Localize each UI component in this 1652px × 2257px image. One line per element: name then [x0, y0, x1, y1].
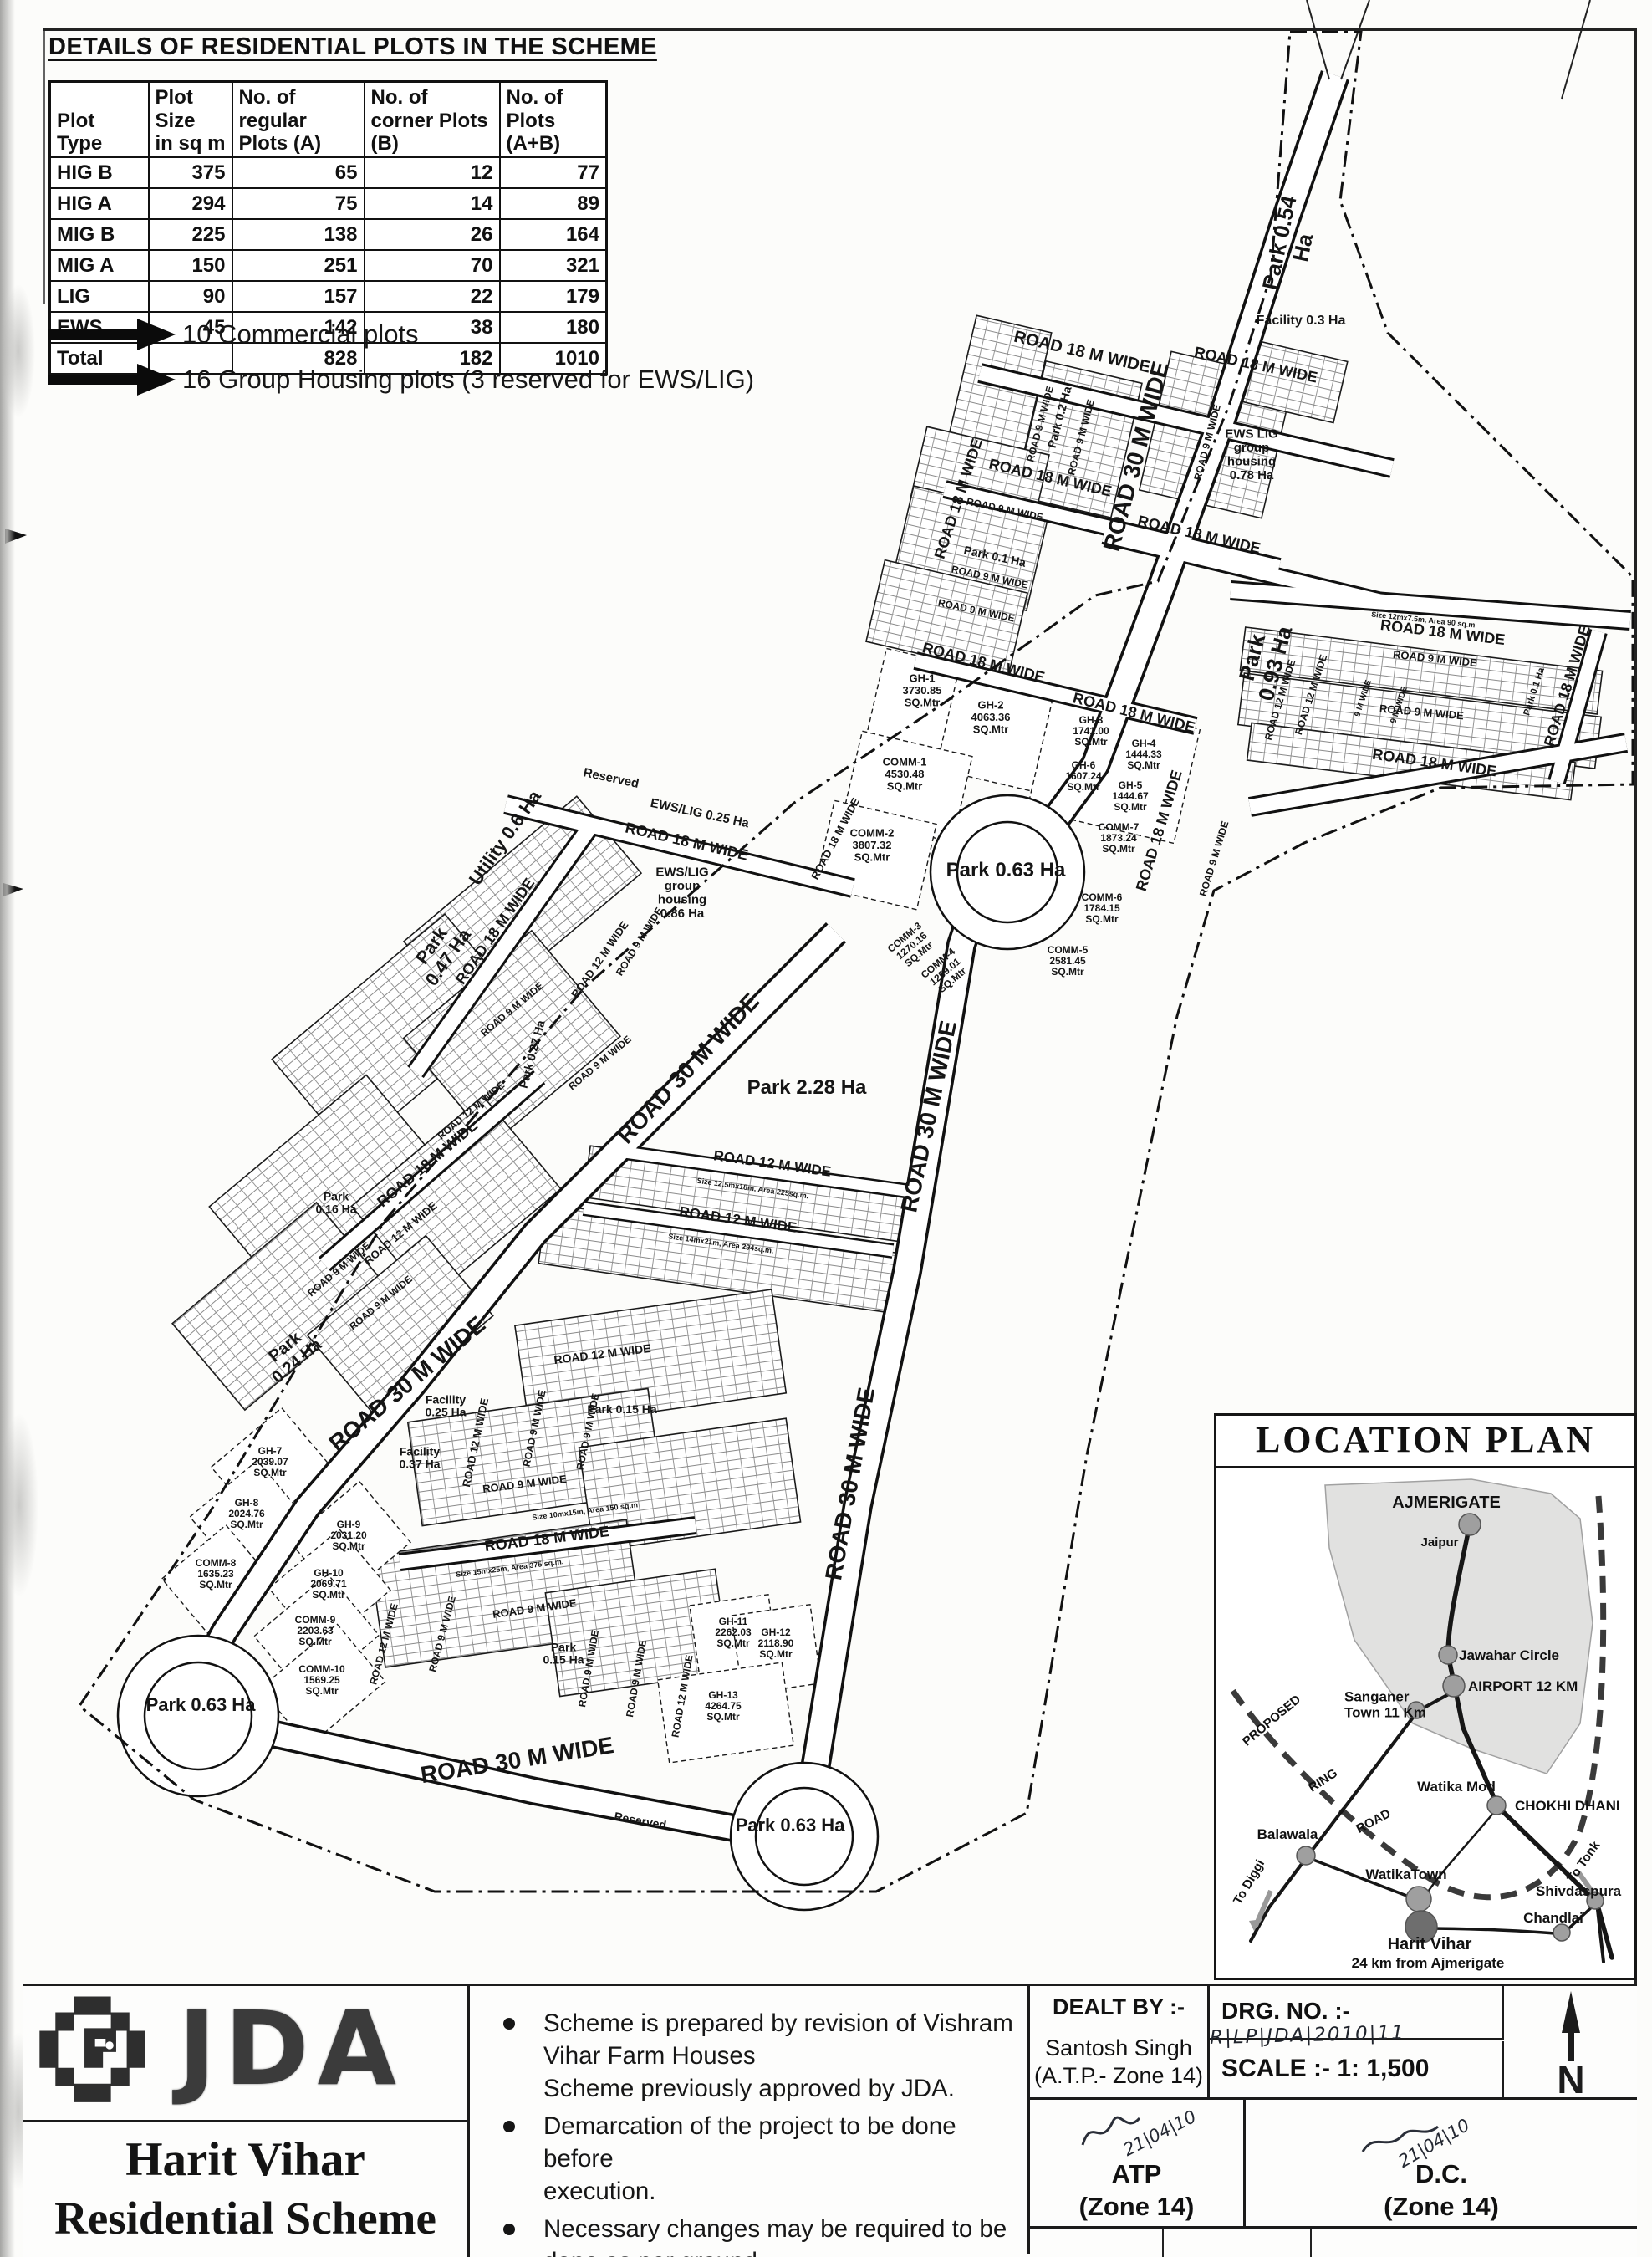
table-cell: 75 — [232, 188, 365, 219]
table-row: LIG9015722179 — [50, 281, 607, 312]
table-cell: 22 — [365, 281, 500, 312]
table-cell: 14 — [365, 188, 500, 219]
table-cell: 157 — [232, 281, 365, 312]
map-label: ROAD 30 M WIDE — [612, 988, 764, 1149]
tick-mark — [1162, 2229, 1164, 2257]
location-label: Shivdaspura — [1536, 1883, 1622, 1899]
table-header-cell: Plot Type — [50, 82, 149, 158]
sheet-border-top — [43, 28, 1637, 31]
agency-name: JDA — [178, 1989, 405, 2108]
dc-label: D.C. (Zone 14) — [1246, 2158, 1637, 2224]
map-label: COMM-92203.63SQ.Mtr — [295, 1614, 336, 1647]
note-text: Scheme is prepared by revision of Vishra… — [543, 2008, 1013, 2106]
svg-text:N: N — [1557, 2058, 1584, 2097]
map-label: COMM-81635.23SQ.Mtr — [196, 1557, 237, 1591]
jda-logo-icon — [33, 1989, 167, 2121]
location-plan-map: AJMERIGATEJaipurJawahar CircleAIRPORT 12… — [1221, 1473, 1630, 1974]
scheme-name-line1: Harit Vihar — [23, 2132, 467, 2187]
location-label: AJMERIGATE — [1392, 1494, 1501, 1512]
atp-sign-cell: 21|04|10 ATP (Zone 14) — [1030, 2097, 1246, 2229]
bullet-icon — [503, 2224, 515, 2235]
map-label: Park 0.63 Ha — [736, 1815, 846, 1836]
north-arrow-cell: N — [1504, 1986, 1637, 2097]
location-label: To Diggi — [1231, 1857, 1267, 1907]
location-node — [1487, 1796, 1506, 1815]
drg-no-cell: DRG. NO. :- R|LP|JDA|2010|11 — [1210, 1986, 1504, 2040]
map-label: COMM-52581.45SQ.Mtr — [1048, 944, 1089, 978]
note-text: Necessary changes may be required to be … — [543, 2214, 1007, 2257]
scheme-name-cell: Harit Vihar Residential Scheme — [23, 2122, 470, 2257]
dealt-by-role: (A.T.P.- Zone 14) — [1030, 2063, 1207, 2089]
table-cell: 65 — [232, 157, 365, 188]
location-plan-inset: LOCATION PLAN — [1214, 1413, 1637, 1980]
atp-label: ATP (Zone 14) — [1030, 2158, 1243, 2224]
map-label: Facility0.37 Ha — [399, 1444, 440, 1470]
location-node — [1297, 1846, 1315, 1865]
location-label: Watika Mod — [1417, 1779, 1496, 1795]
bullet-icon — [503, 2121, 515, 2132]
table-cell: 12 — [365, 157, 500, 188]
table-cell: HIG A — [50, 188, 149, 219]
table-cell: 225 — [149, 219, 232, 250]
table-header-cell: No. of corner Plots (B) — [365, 82, 500, 158]
table-cell: 77 — [500, 157, 607, 188]
legend-group-housing-label: 16 Group Housing plots (3 reserved for E… — [182, 365, 754, 395]
legend-group-housing: 16 Group Housing plots (3 reserved for E… — [48, 365, 754, 395]
table-cell: 179 — [500, 281, 607, 312]
note-item: Scheme is prepared by revision of Vishra… — [503, 2008, 1019, 2106]
table-cell: MIG B — [50, 219, 149, 250]
location-label: CHOKHI DHANI — [1515, 1798, 1620, 1814]
map-label: EWS/LIG 0.25 Ha — [649, 796, 751, 831]
table-cell: 70 — [365, 250, 500, 281]
table-row: MIG B22513826164 — [50, 219, 607, 250]
table-header-cell: Plot Size in sq m — [149, 82, 232, 158]
note-item: Necessary changes may be required to be … — [503, 2214, 1019, 2257]
location-label: Jawahar Circle — [1459, 1647, 1559, 1663]
notes-cell: Scheme is prepared by revision of Vishra… — [470, 1986, 1030, 2254]
map-label: Reserved — [582, 765, 640, 791]
map-label: COMM-101569.25SQ.Mtr — [298, 1663, 345, 1697]
map-label: Facility 0.3 Ha — [1257, 314, 1346, 328]
dc-sign-cell: 21|04|10 D.C. (Zone 14) — [1246, 2097, 1637, 2229]
agency-cell: JDA — [23, 1986, 470, 2122]
scanned-scheme-drawing: Park 0.54HaFacility 0.3 HaROAD 18 M WIDE… — [0, 0, 1652, 2257]
arrow-icon — [48, 329, 139, 340]
table-cell: 89 — [500, 188, 607, 219]
dealt-by-cell: DEALT BY :- Santosh Singh (A.T.P.- Zone … — [1030, 1986, 1210, 2097]
map-label: GH-122118.90SQ.Mtr — [758, 1626, 794, 1660]
table-header-cell: No. of regular Plots (A) — [232, 82, 365, 158]
map-label: COMM-23807.32SQ.Mtr — [850, 827, 895, 864]
location-node — [1439, 1646, 1457, 1664]
table-cell: 375 — [149, 157, 232, 188]
location-label: Harit Vihar — [1388, 1935, 1472, 1953]
north-arrow-icon: N — [1504, 1986, 1637, 2097]
map-label: Park 2.28 Ha — [747, 1076, 867, 1099]
location-label: Chandlai — [1523, 1910, 1583, 1926]
scan-smudge — [2, 284, 35, 418]
location-node — [1553, 1924, 1570, 1941]
map-label: Park 0.15 Ha — [587, 1402, 656, 1416]
legend-commercial-label: 10 Commercial plots — [182, 319, 419, 350]
page-title: DETAILS OF RESIDENTIAL PLOTS IN THE SCHE… — [48, 33, 657, 61]
map-label: ROAD 9 M WIDE — [1197, 820, 1231, 897]
map-label: Park 0.63 Ha — [146, 1694, 257, 1715]
scale-value: SCALE :- 1: 1,500 — [1221, 2055, 1502, 2083]
location-label: Jaipur — [1420, 1535, 1458, 1550]
drg-no-label: DRG. NO. :- — [1221, 1998, 1350, 2025]
location-label: Balawala — [1257, 1826, 1318, 1842]
table-cell: 180 — [500, 312, 607, 343]
table-cell: 164 — [500, 219, 607, 250]
map-label: GH-102069.71SQ.Mtr — [310, 1567, 347, 1601]
table-cell: 150 — [149, 250, 232, 281]
map-label: Facility0.25 Ha — [425, 1392, 466, 1418]
location-plan-title: LOCATION PLAN — [1216, 1416, 1634, 1468]
table-row: HIG B375651277 — [50, 157, 607, 188]
map-label: Park 0.54Ha — [1257, 193, 1325, 297]
table-cell: HIG B — [50, 157, 149, 188]
legend-commercial: 10 Commercial plots — [48, 319, 419, 350]
location-label: WatikaTown — [1365, 1866, 1446, 1882]
title-block: JDA Harit Vihar Residential Scheme Schem… — [23, 1984, 1637, 2257]
map-label: GH-134264.75SQ.Mtr — [705, 1689, 742, 1723]
dealt-by-label: DEALT BY :- — [1030, 1994, 1207, 2020]
location-label: 24 km from Ajmerigate — [1352, 1955, 1505, 1971]
scheme-name-line2: Residential Scheme — [23, 2192, 467, 2244]
location-node — [1459, 1514, 1481, 1535]
map-label: Park 0.63 Ha — [946, 859, 1066, 881]
dealt-by-name: Santosh Singh — [1030, 2035, 1207, 2061]
arrow-icon — [48, 375, 139, 385]
map-label: EWS LIGgrouphousing0.78 Ha — [1225, 426, 1277, 483]
note-text: Demarcation of the project to be done be… — [543, 2111, 1019, 2208]
table-cell: LIG — [50, 281, 149, 312]
location-node — [1443, 1675, 1465, 1697]
table-cell: 321 — [500, 250, 607, 281]
map-label: GH-112262.03SQ.Mtr — [715, 1616, 752, 1649]
table-header-cell: No. of Plots (A+B) — [500, 82, 607, 158]
table-cell: 251 — [232, 250, 365, 281]
table-cell: 90 — [149, 281, 232, 312]
tick-mark — [1310, 2229, 1312, 2257]
scale-cell: SCALE :- 1: 1,500 — [1210, 2041, 1504, 2097]
note-item: Demarcation of the project to be done be… — [503, 2111, 1019, 2208]
table-cell: MIG A — [50, 250, 149, 281]
location-label: ROAD — [1354, 1806, 1393, 1836]
table-cell: 294 — [149, 188, 232, 219]
table-cell: 26 — [365, 219, 500, 250]
table-row: MIG A15025170321 — [50, 250, 607, 281]
bullet-icon — [503, 2018, 515, 2030]
map-label: COMM-14530.48SQ.Mtr — [883, 756, 927, 793]
map-label: COMM-71873.24SQ.Mtr — [1099, 821, 1140, 855]
sheet-border-left — [43, 28, 45, 304]
map-label: ROAD 9 M WIDE — [614, 906, 665, 978]
scan-smudge — [0, 1413, 38, 1597]
table-cell: 138 — [232, 219, 365, 250]
location-label: AIRPORT 12 KM — [1468, 1678, 1578, 1694]
map-label: COMM-61784.15SQ.Mtr — [1082, 891, 1123, 925]
location-node — [1406, 1887, 1431, 1912]
table-row: HIG A294751489 — [50, 188, 607, 219]
